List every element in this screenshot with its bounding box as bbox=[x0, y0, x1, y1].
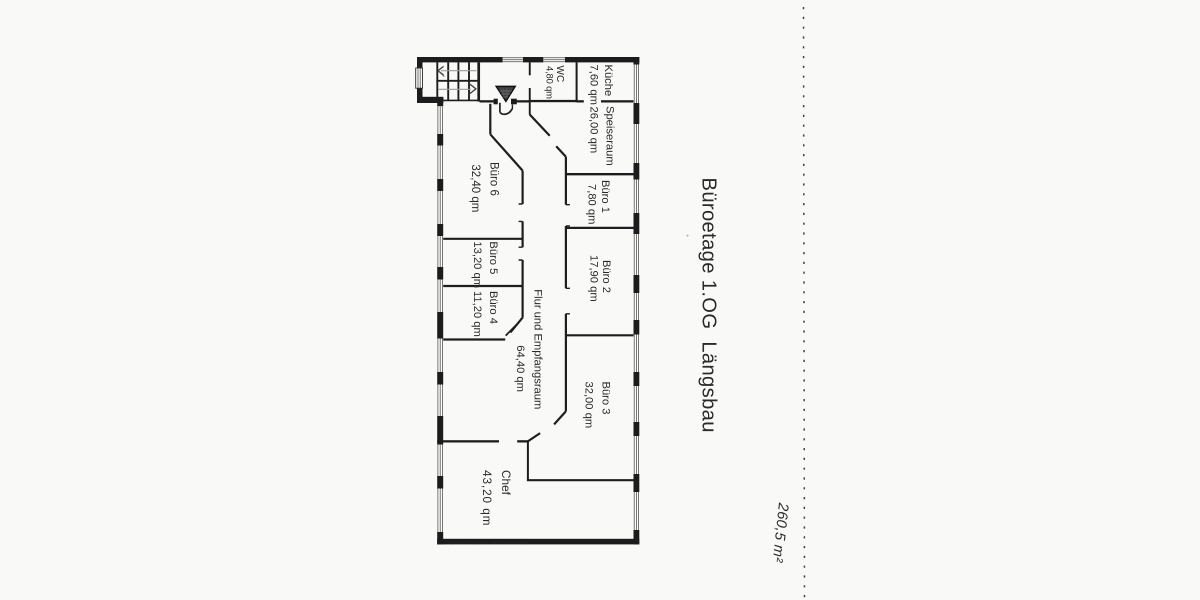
svg-text:7,80 qm: 7,80 qm bbox=[586, 184, 598, 224]
svg-text:Büro 5: Büro 5 bbox=[487, 241, 499, 274]
svg-text:Büro 4: Büro 4 bbox=[487, 291, 499, 324]
svg-text:Büro 1: Büro 1 bbox=[599, 180, 611, 213]
svg-text:7,60 qm: 7,60 qm bbox=[587, 65, 599, 105]
svg-text:17,90 qm: 17,90 qm bbox=[588, 255, 600, 302]
svg-text:13,20 qm: 13,20 qm bbox=[471, 241, 483, 288]
svg-text:43,20 qm: 43,20 qm bbox=[480, 470, 494, 526]
svg-text:Flur und Empfangsraum: Flur und Empfangsraum bbox=[531, 289, 543, 409]
svg-text:© Agentur Background Immobilie: © Agentur Background Immobilienwerbung bbox=[444, 540, 528, 544]
svg-text:32,00 qm: 32,00 qm bbox=[582, 382, 594, 429]
svg-text:Speiseraum: Speiseraum bbox=[603, 106, 615, 166]
svg-text:64,40 qm: 64,40 qm bbox=[514, 345, 526, 392]
svg-text:Chef: Chef bbox=[499, 470, 513, 496]
svg-text:11,20 qm: 11,20 qm bbox=[471, 291, 483, 337]
svg-text:4,80 qm: 4,80 qm bbox=[544, 66, 555, 99]
svg-text:Büro 2: Büro 2 bbox=[600, 260, 612, 293]
svg-text:32,40 qm: 32,40 qm bbox=[469, 164, 481, 212]
svg-text:Küche: Küche bbox=[602, 65, 614, 97]
svg-text:26,00 qm: 26,00 qm bbox=[588, 107, 600, 154]
svg-text:Büroetage 1.OG Längsbau: Büroetage 1.OG Längsbau bbox=[698, 178, 720, 433]
svg-text:Büro 6: Büro 6 bbox=[488, 162, 500, 196]
svg-text:Büro 3: Büro 3 bbox=[600, 382, 612, 415]
